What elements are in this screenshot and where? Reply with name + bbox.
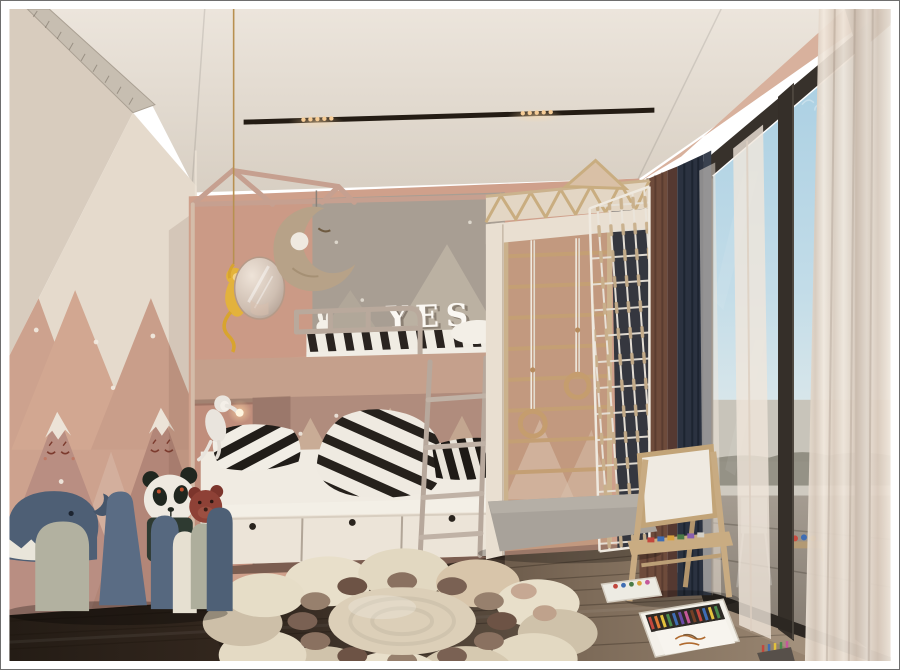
margin-top <box>1 1 898 9</box>
drawer-handle <box>449 515 456 522</box>
sage-cushion <box>35 521 89 611</box>
margin-right <box>891 1 899 669</box>
easel-board <box>639 447 715 526</box>
interior-render: YES YES <box>0 0 900 670</box>
margin-bottom <box>1 661 898 669</box>
drawer-handle <box>249 523 256 530</box>
bunk-bed: YES YES <box>193 170 512 575</box>
drawer-handle <box>349 519 356 526</box>
margin-left <box>1 1 9 669</box>
